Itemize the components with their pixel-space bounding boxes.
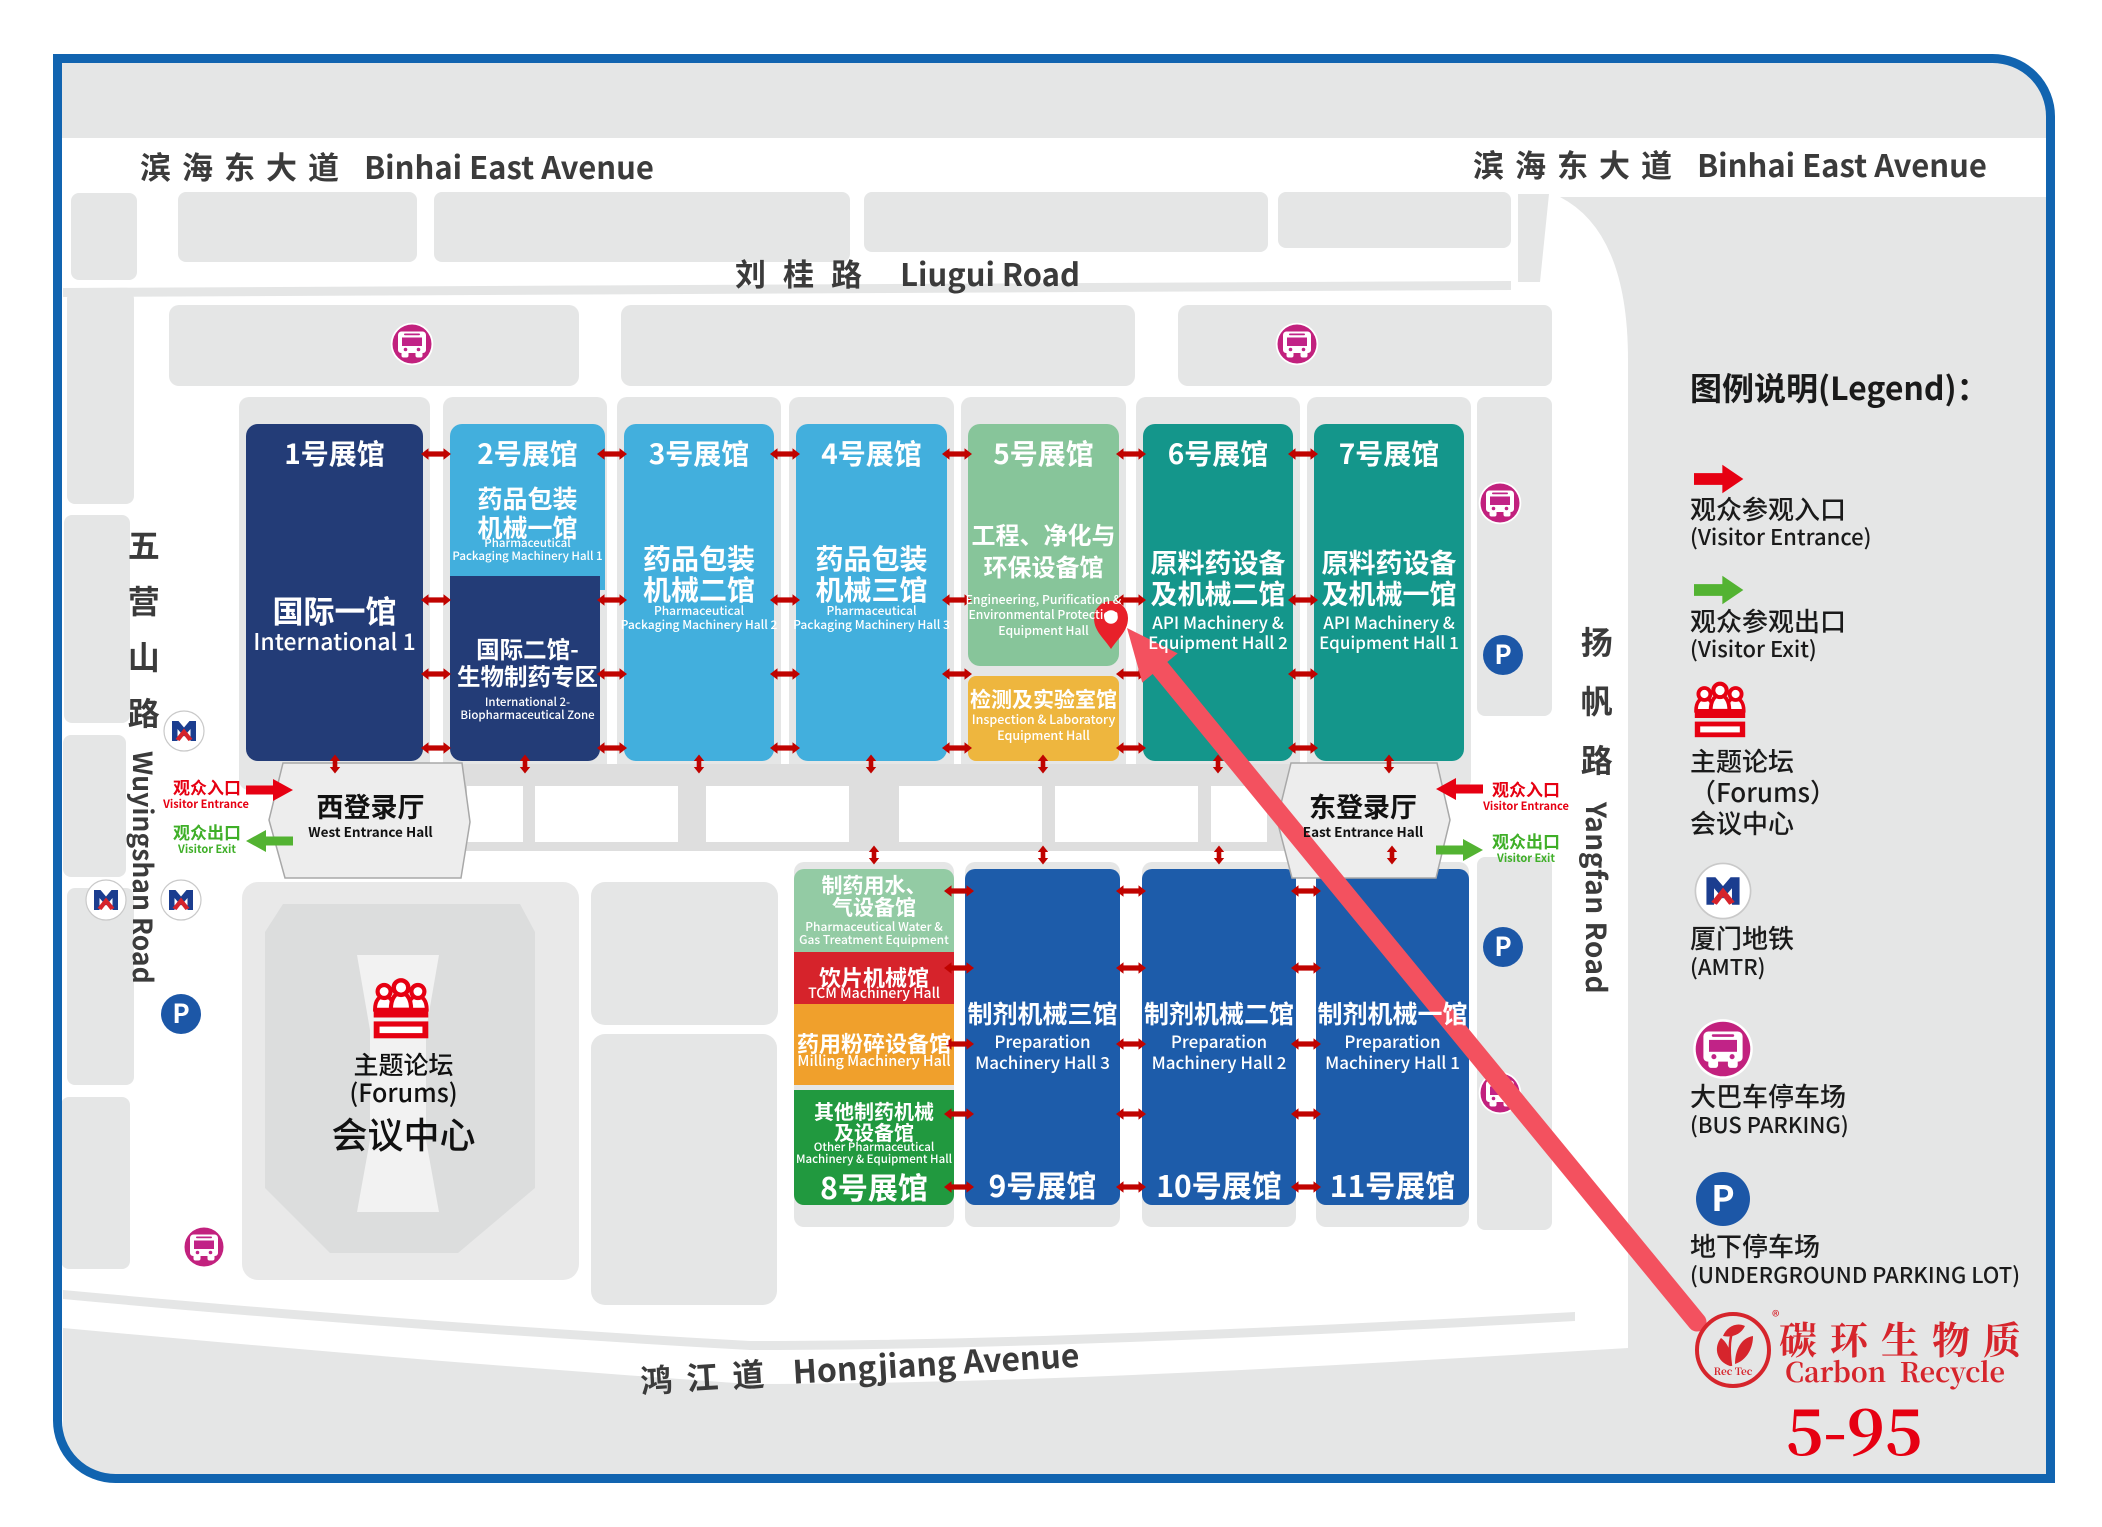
svg-text:Rec Tec: Rec Tec [1714, 1363, 1753, 1378]
